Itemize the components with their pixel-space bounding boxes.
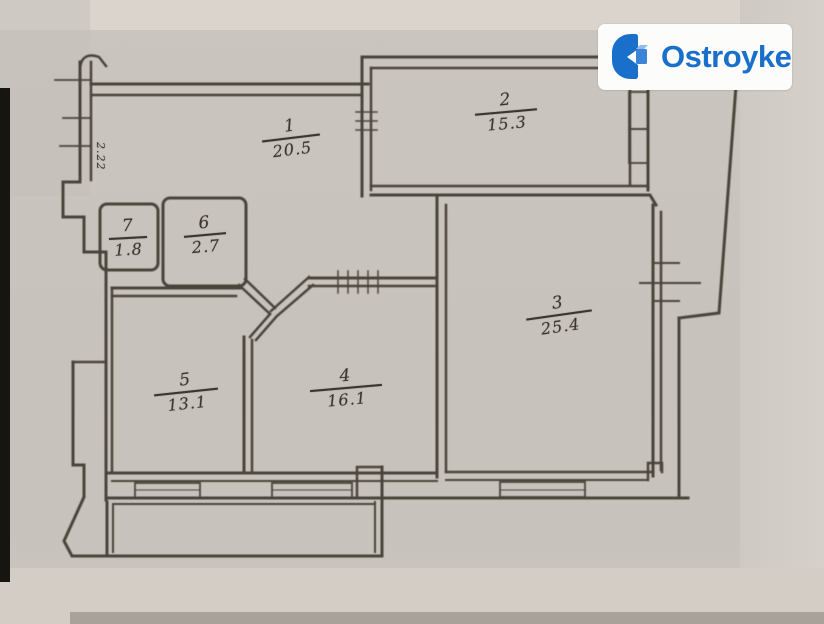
- room-7-number: 7: [104, 217, 151, 236]
- corridor-diagonal-lower: [250, 314, 276, 340]
- floor-plan-walls-svg: [0, 0, 824, 624]
- ostroyke-logo-text: Ostroyke: [661, 39, 791, 75]
- balcony-inner-lines: [113, 504, 375, 552]
- room3-window-cross-marks: [640, 263, 700, 301]
- balcony-outline: [107, 502, 382, 556]
- room2-window-lower: [629, 129, 648, 163]
- left-wall-hatch-ticks: [55, 80, 91, 146]
- ostroyke-logo-icon: [611, 33, 651, 81]
- room4-door-hatch: [338, 271, 378, 293]
- wall-dimension-label: 2.22: [94, 142, 107, 202]
- ostroyke-logo-badge: Ostroyke: [598, 24, 792, 90]
- corridor-diagonal-right: [271, 277, 313, 316]
- floor-plan-scan: 1 20.5 2 15.3 3 25.4 4 16.1 5 13.1 6 2.7…: [0, 0, 824, 624]
- room-4-label: 4 16.1: [304, 365, 387, 412]
- room-6-label: 6 2.7: [178, 213, 231, 257]
- room-2-label: 2 15.3: [468, 89, 543, 135]
- room-7-label: 7 1.8: [104, 217, 152, 259]
- outer-wall-left: [63, 62, 106, 500]
- room-6-number: 6: [178, 213, 229, 234]
- room3-top-wall: [371, 195, 656, 205]
- room-5-label: 5 13.1: [146, 368, 226, 416]
- room2-window-upper: [629, 92, 648, 129]
- room-7-area: 1.8: [105, 241, 152, 259]
- entry-door-arc: [80, 56, 106, 70]
- room2-door-hatch: [356, 112, 377, 130]
- outer-wall-left-lower: [64, 362, 107, 556]
